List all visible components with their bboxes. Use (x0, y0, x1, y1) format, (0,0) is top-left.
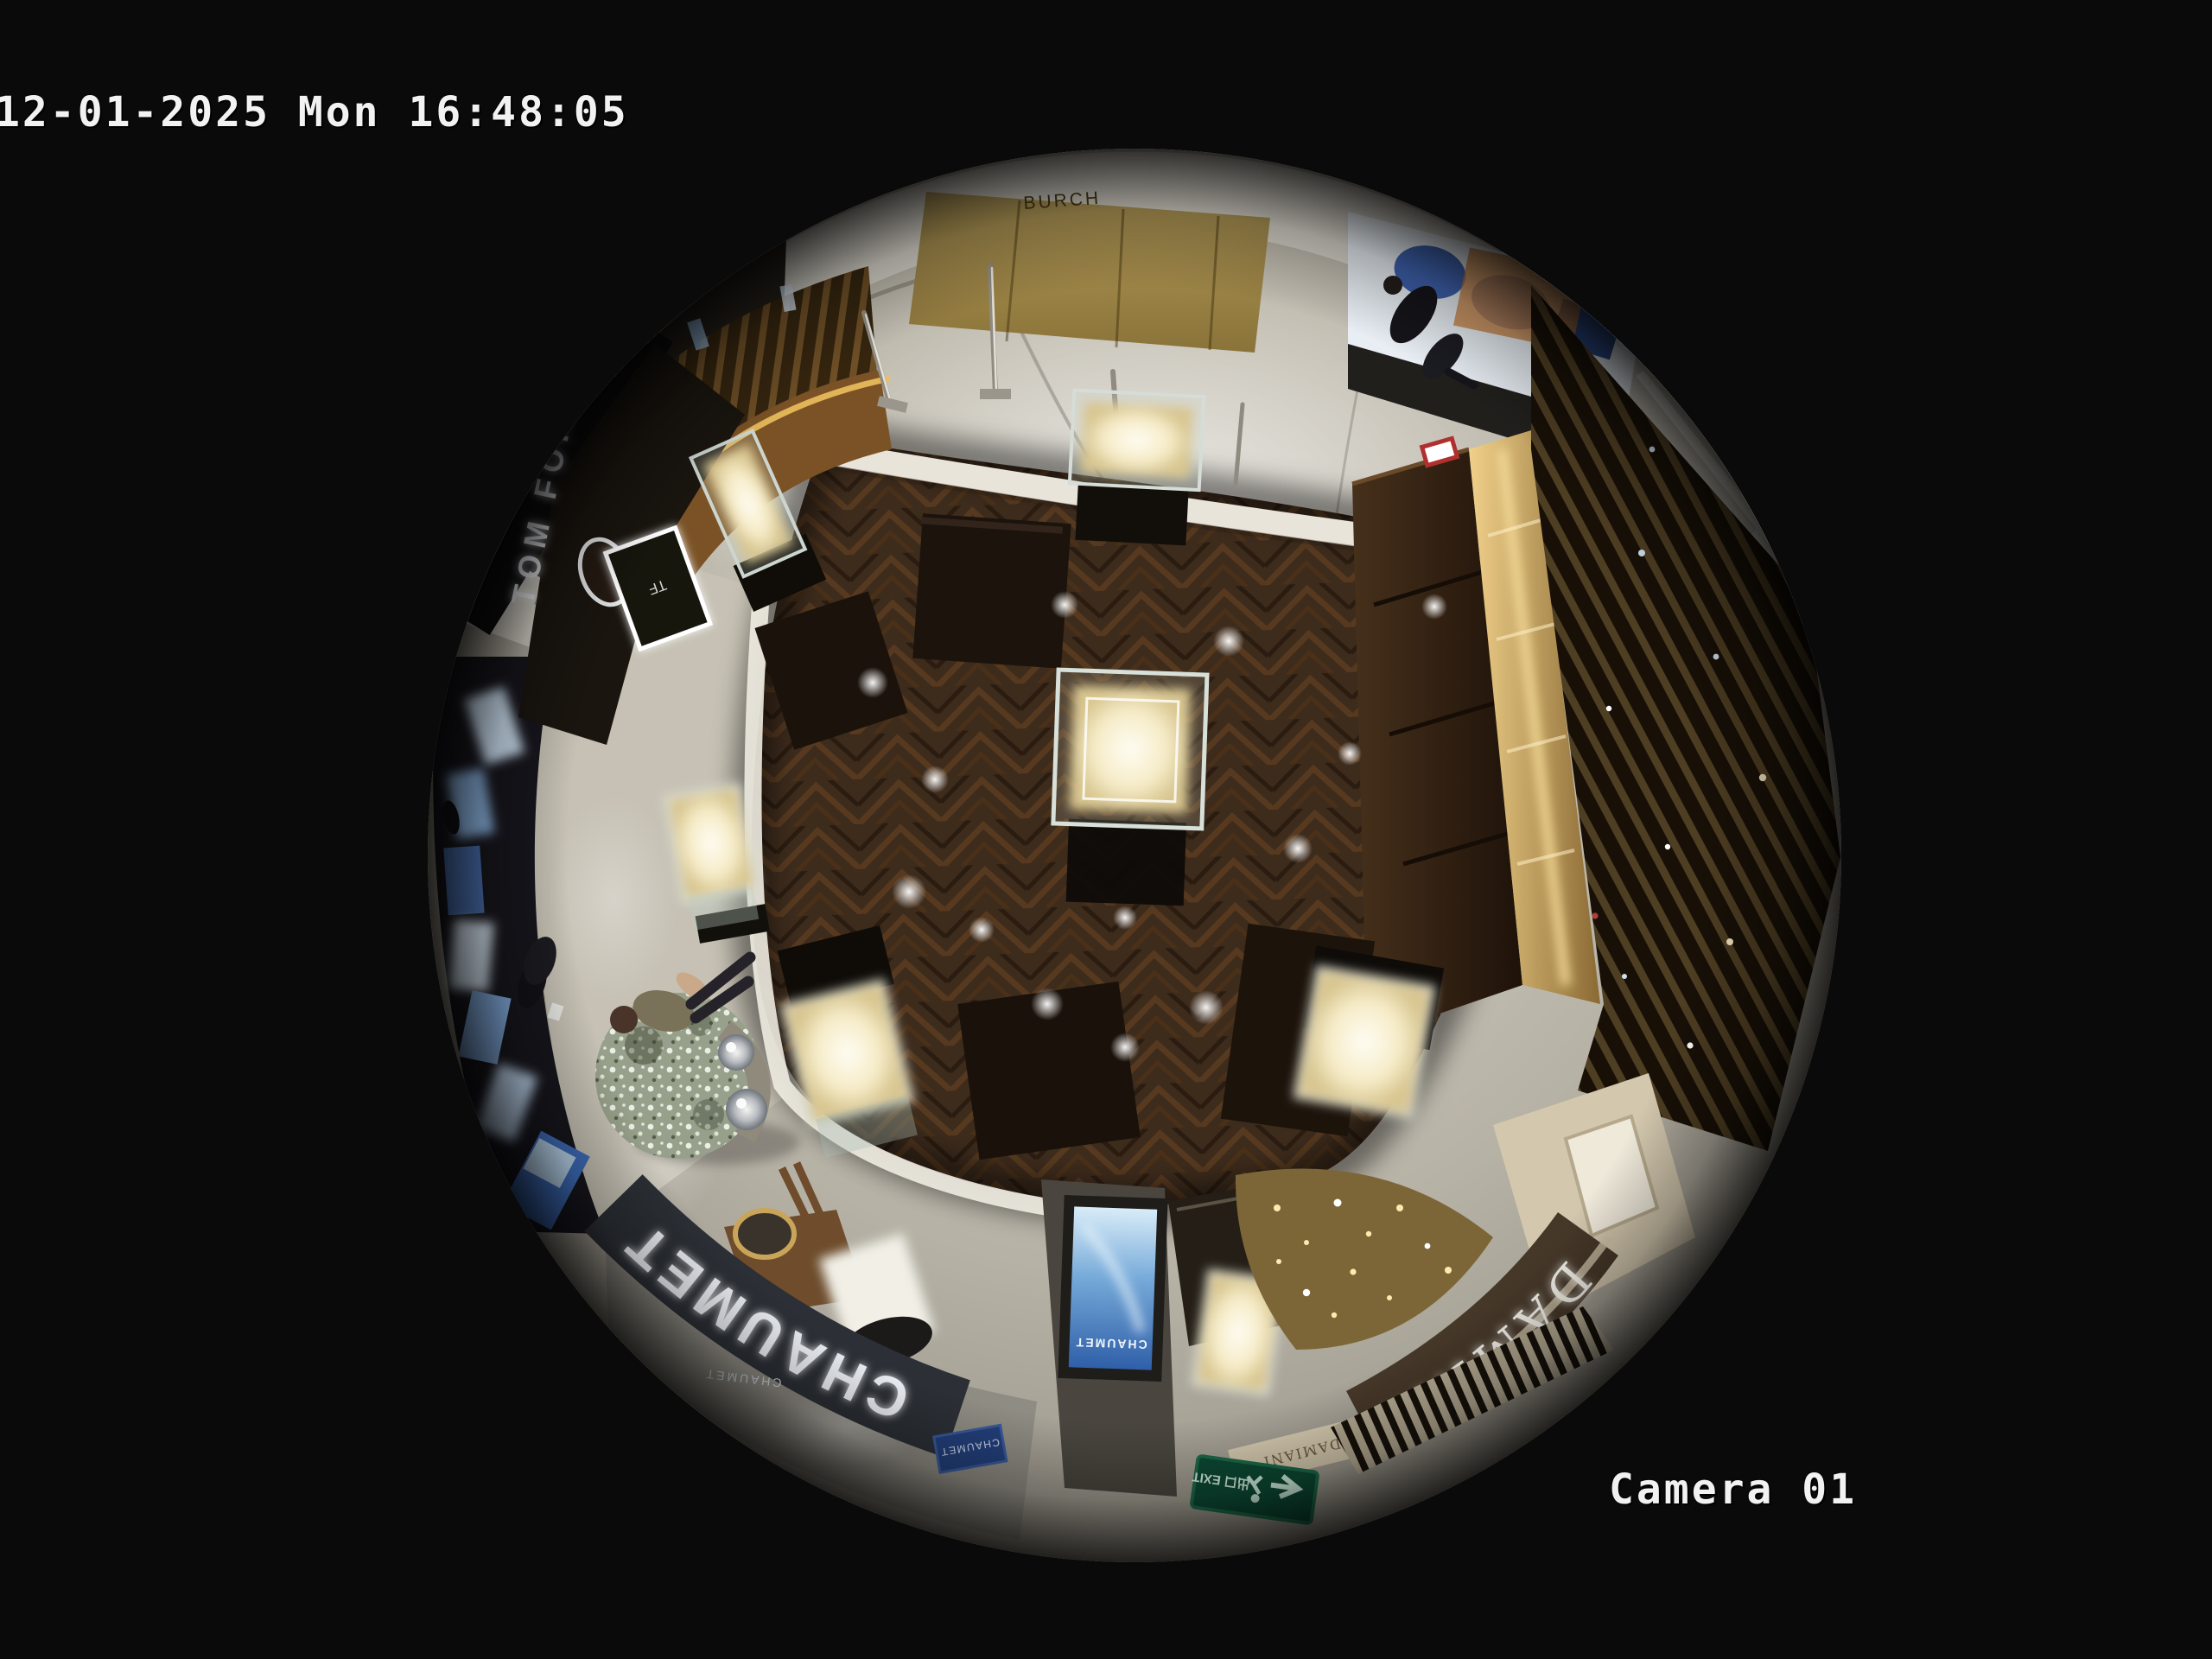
lens-vignette (426, 147, 1843, 1564)
fisheye-scene: BURCH (0, 0, 2212, 1659)
camera-label: Camera 01 (1609, 1469, 1857, 1510)
cctv-frame: BURCH (0, 0, 2212, 1659)
timestamp-overlay: 12-01-2025 Mon 16:48:05 (0, 92, 629, 133)
fisheye-camera-view: BURCH (0, 0, 2212, 1659)
